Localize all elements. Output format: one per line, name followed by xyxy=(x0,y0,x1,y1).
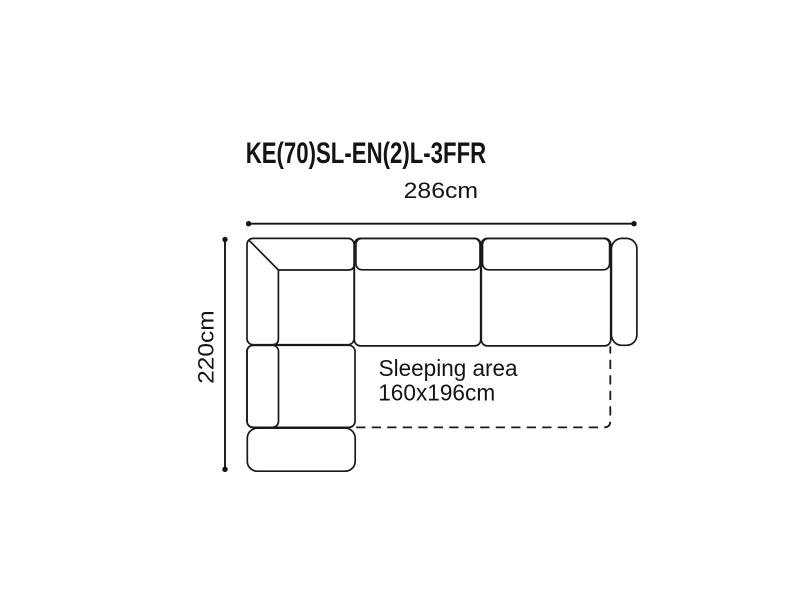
svg-text:220cm: 220cm xyxy=(194,310,219,384)
svg-text:KE(70)SL-EN(2)L-3FFR: KE(70)SL-EN(2)L-3FFR xyxy=(246,137,487,170)
svg-text:160x196cm: 160x196cm xyxy=(378,379,495,405)
svg-text:286cm: 286cm xyxy=(404,178,479,203)
svg-text:Sleeping area: Sleeping area xyxy=(379,355,518,381)
